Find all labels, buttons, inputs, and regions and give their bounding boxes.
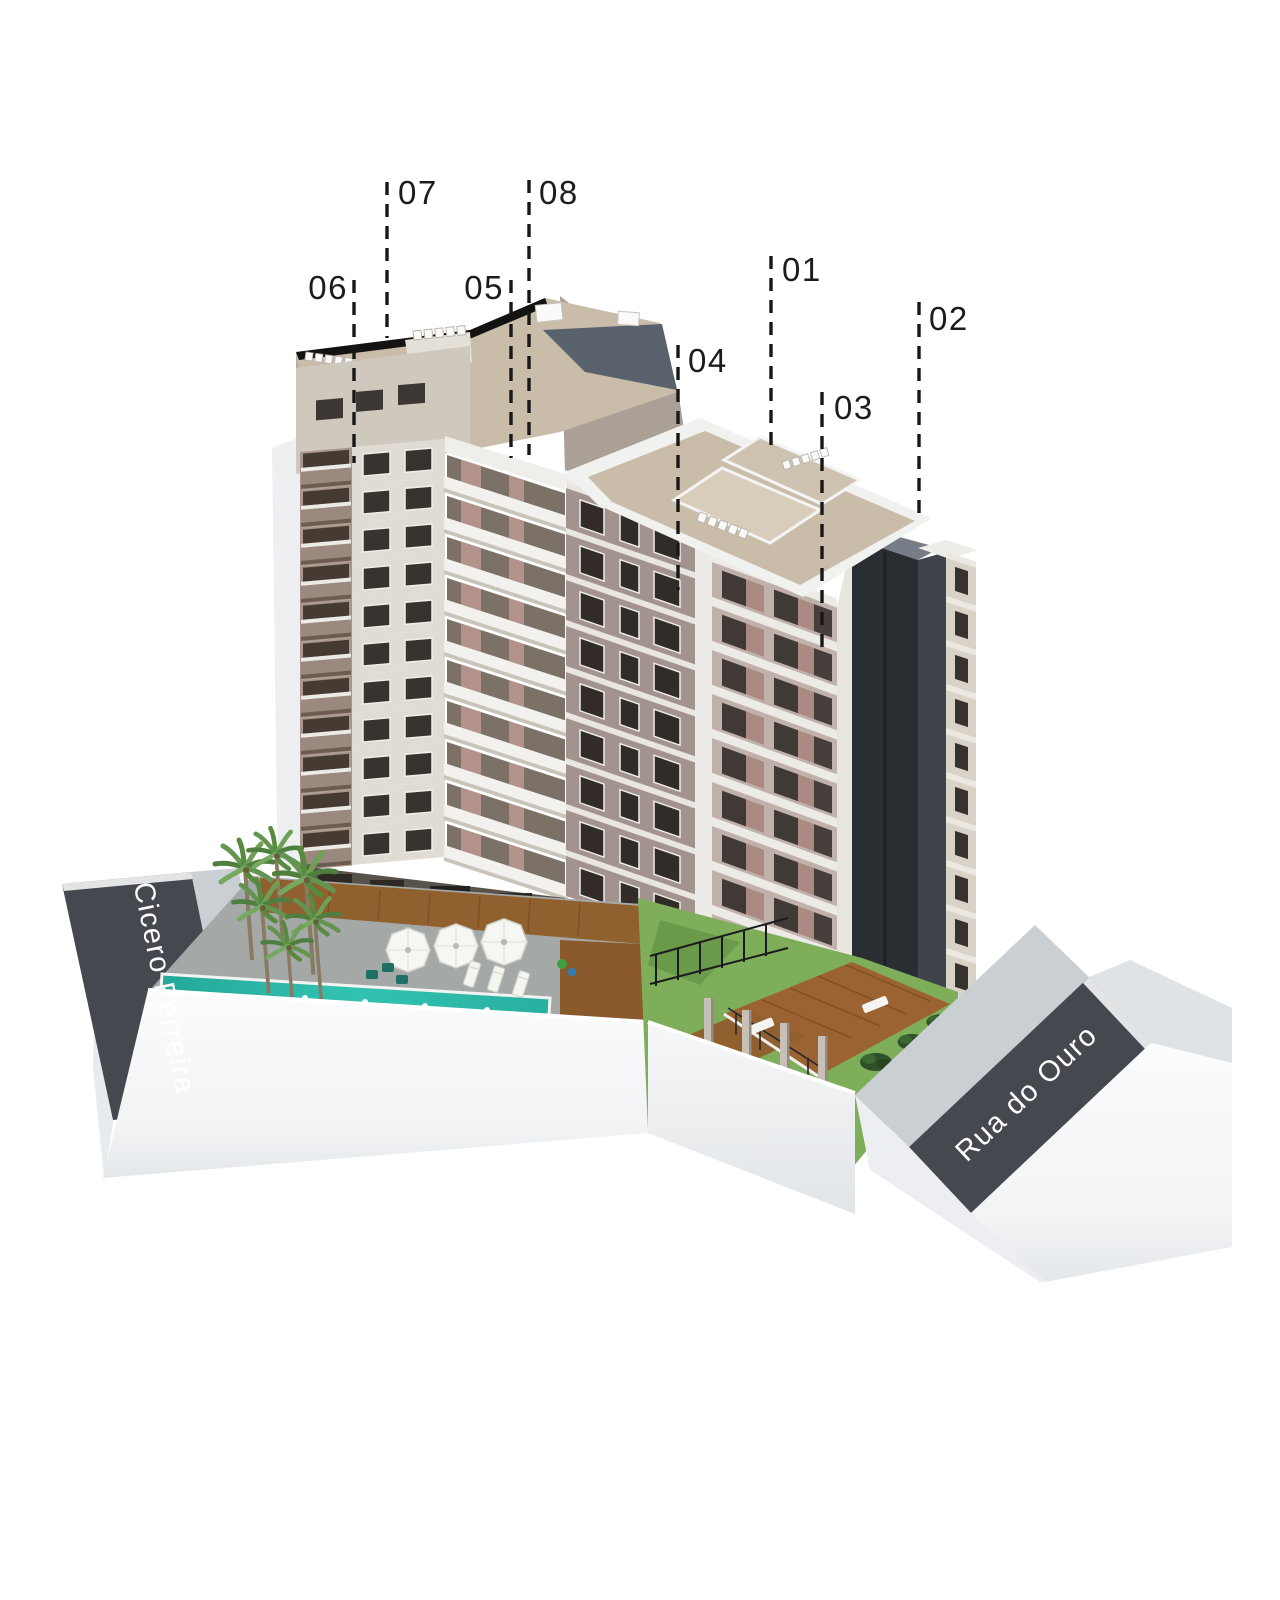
left-tower-window-facade bbox=[352, 439, 445, 865]
callout-unit-01: 01 bbox=[771, 251, 822, 450]
dark-core bbox=[852, 530, 946, 1000]
slab-tower-facade bbox=[444, 454, 568, 901]
building-implantation-render: Cicero Ferreira Rua do Ouro 01 02 03 04 … bbox=[0, 0, 1280, 1600]
unit-label-08: 08 bbox=[539, 174, 579, 211]
callout-unit-07: 07 bbox=[387, 174, 438, 338]
callout-unit-02: 02 bbox=[919, 300, 969, 520]
unit-label-02: 02 bbox=[929, 300, 969, 337]
unit-label-01: 01 bbox=[782, 251, 822, 288]
pool-toy bbox=[557, 959, 567, 969]
rendering-canvas: Cicero Ferreira Rua do Ouro 01 02 03 04 … bbox=[0, 0, 1280, 1600]
unit-label-06: 06 bbox=[308, 269, 348, 306]
left-tower-balcony-strip bbox=[300, 447, 352, 870]
unit-label-04: 04 bbox=[688, 342, 728, 379]
right-facade bbox=[946, 552, 976, 1002]
unit-label-05: 05 bbox=[464, 269, 504, 306]
unit-label-03: 03 bbox=[834, 389, 874, 426]
pool-toy bbox=[568, 968, 576, 976]
wood-deck-right bbox=[560, 940, 650, 1024]
unit-label-07: 07 bbox=[398, 174, 438, 211]
